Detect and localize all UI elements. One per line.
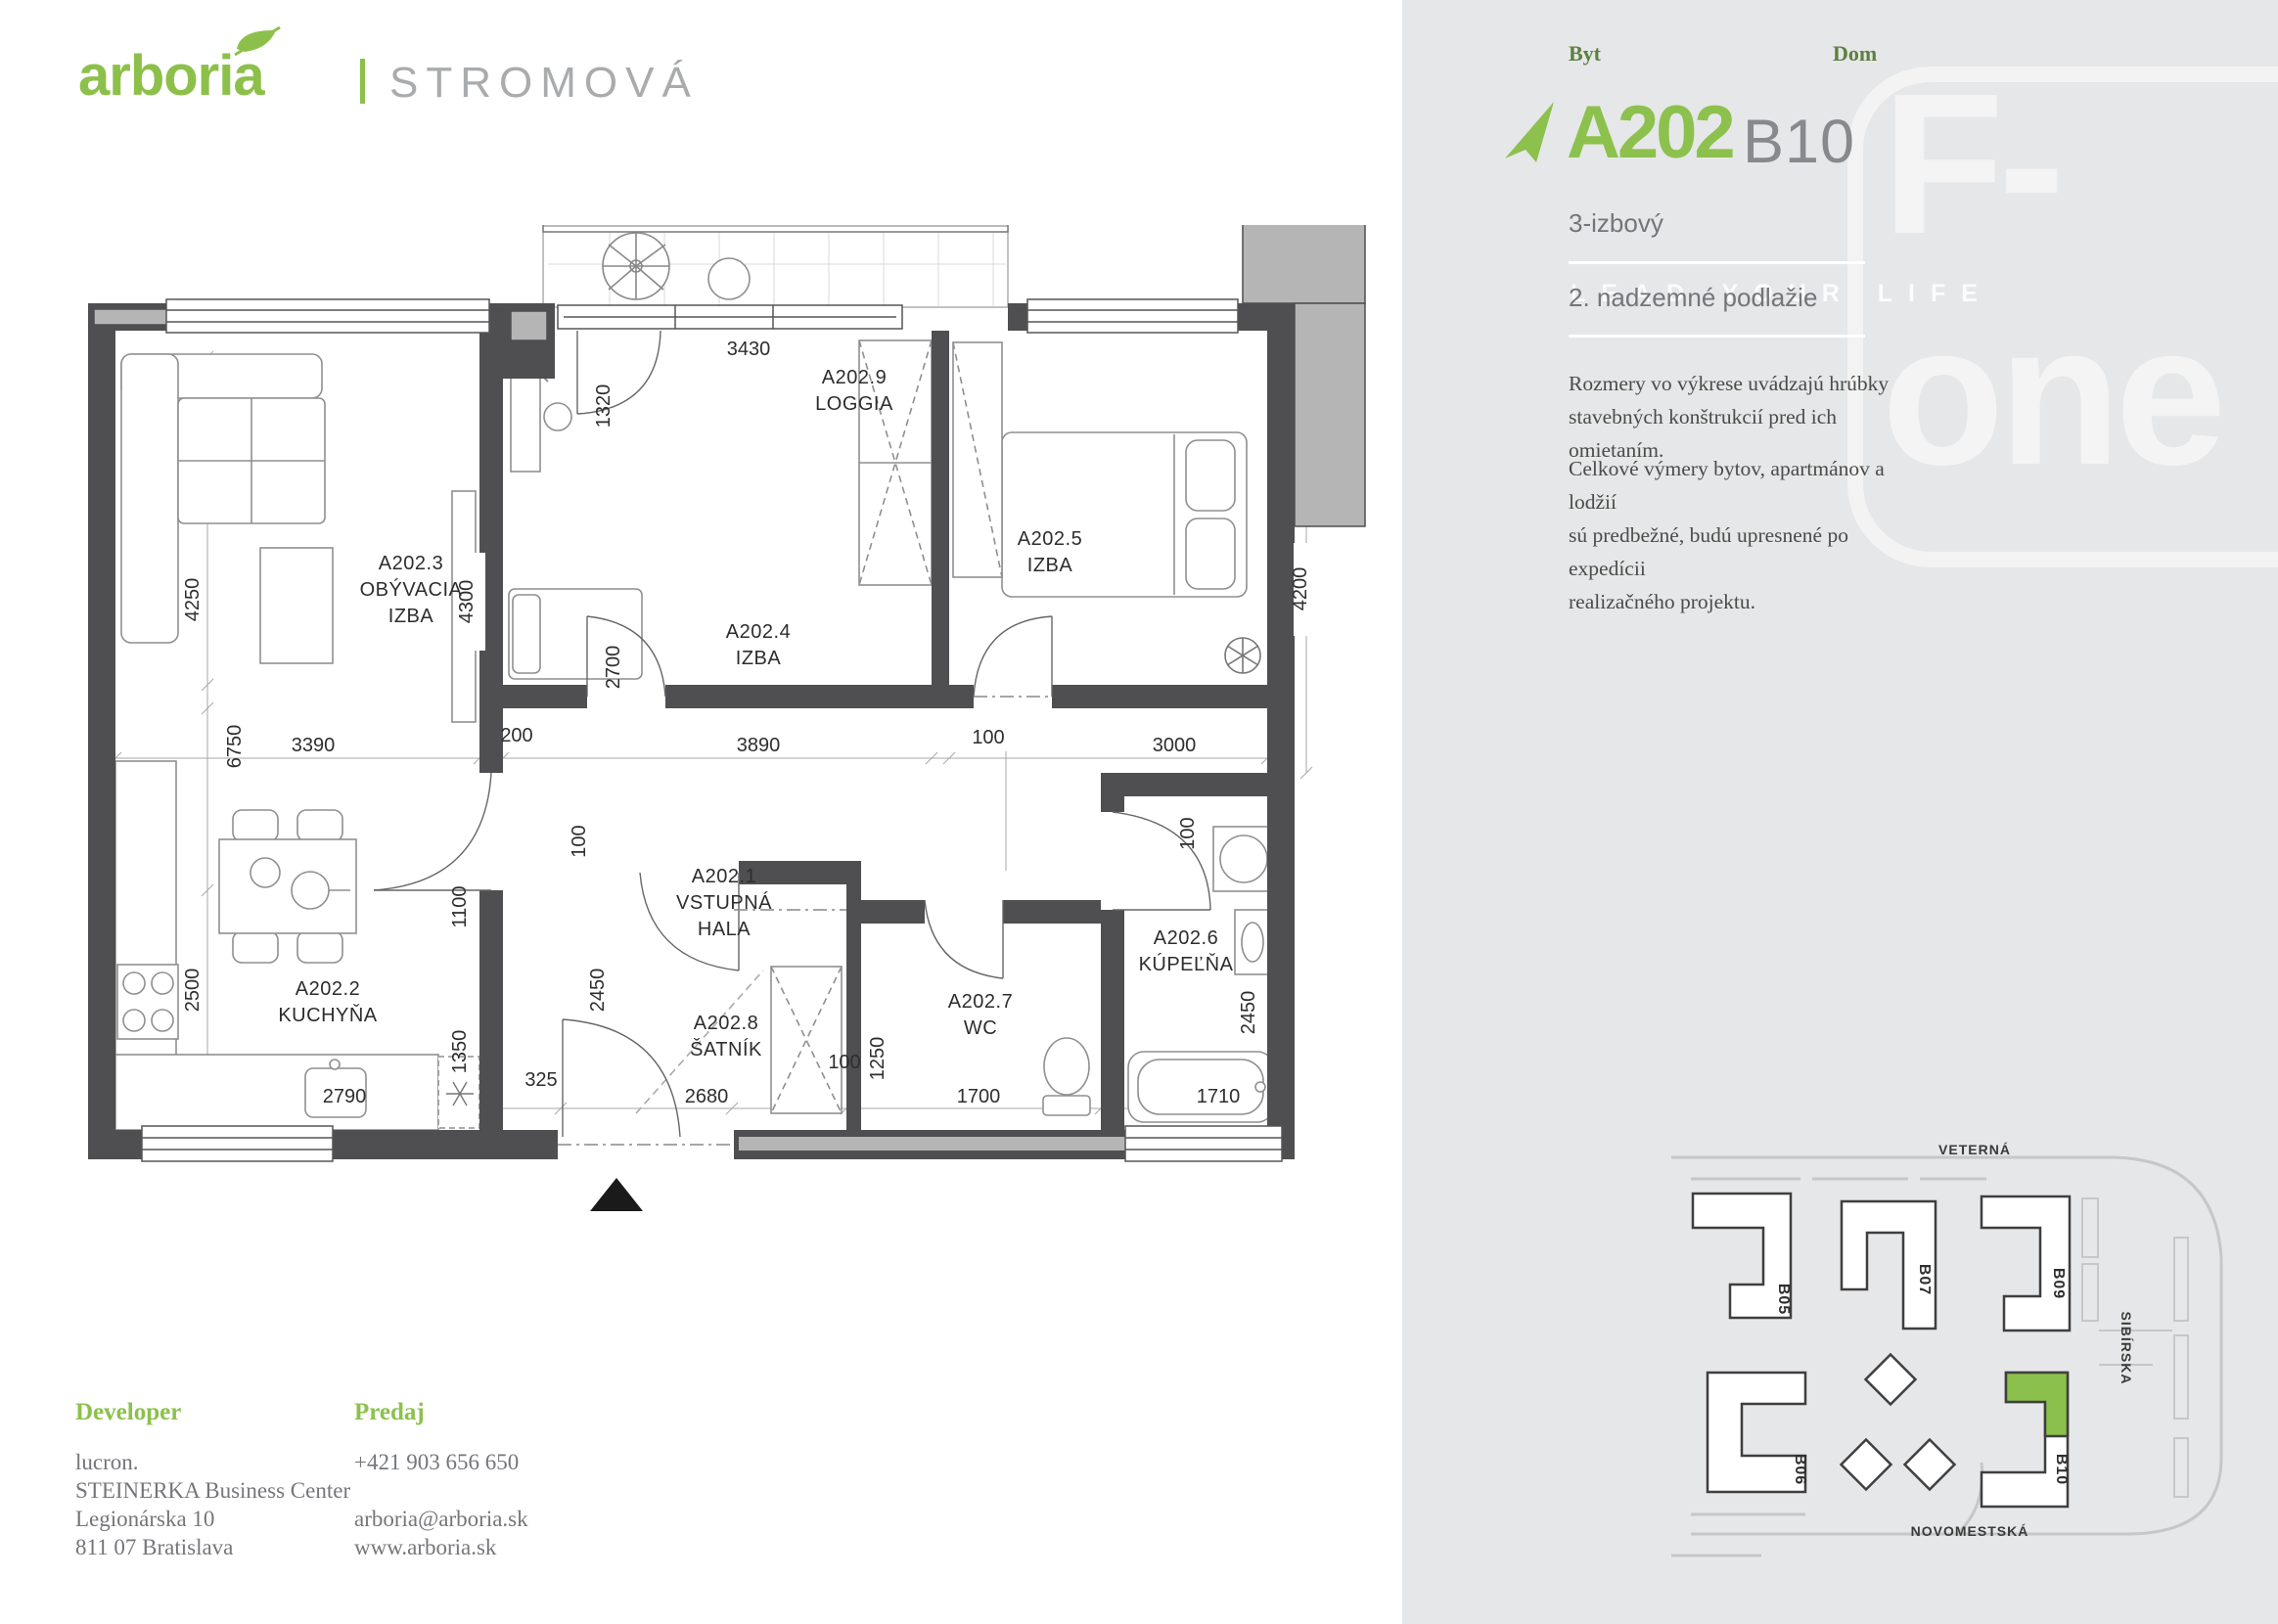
dimension-label: 3890 <box>737 735 781 756</box>
floor-plan-drawing: 3430132042504300270067503390200389010030… <box>88 225 1370 1262</box>
dimension-label: 3000 <box>1153 735 1197 756</box>
unit-type: 3-izbový <box>1569 208 1663 239</box>
room-code-label: A202.1 <box>692 866 756 887</box>
room-name-label: IZBA <box>1027 555 1073 576</box>
divider-line <box>1569 261 1865 264</box>
brand-header: arboria STROMOVÁ <box>78 47 264 115</box>
building-label: B07 <box>1916 1264 1933 1295</box>
dimension-label: 2450 <box>587 969 609 1013</box>
stove-icon <box>117 965 178 1039</box>
room-code-label: A202.8 <box>694 1013 758 1034</box>
dimension-label: 6750 <box>224 725 246 769</box>
dimension-label: 3430 <box>727 338 771 360</box>
developer-lines: lucron.STEINERKA Business CenterLegionár… <box>75 1448 350 1561</box>
building-label: B10 <box>2053 1454 2070 1485</box>
developer-heading: Developer <box>75 1399 350 1426</box>
street-label: NOVOMESTSKÁ <box>1911 1523 2029 1539</box>
text-line: lucron. <box>75 1448 350 1476</box>
text-line: realizačného projektu. <box>1569 585 1921 618</box>
sales-lines: +421 903 656 650 arboria@arboria.skwww.a… <box>354 1448 528 1561</box>
dimension-label: 2680 <box>685 1086 729 1107</box>
entrance-arrow <box>590 1178 643 1211</box>
dimension-label: 1350 <box>449 1030 471 1074</box>
room-code-label: A202.9 <box>822 367 887 388</box>
room-name-label: VSTUPNÁ <box>676 891 772 914</box>
room-name-label: OBÝVACIA <box>360 578 463 601</box>
loggia-table-icon <box>708 258 750 299</box>
sales-block: Predaj +421 903 656 650 arboria@arboria.… <box>354 1399 528 1561</box>
building-b09 <box>1982 1196 2070 1331</box>
washing-machine-icon <box>1213 827 1274 891</box>
room-name-label: HALA <box>698 919 751 940</box>
room-code-label: A202.5 <box>1018 528 1082 550</box>
dimension-label: 1250 <box>867 1037 888 1081</box>
dimension-label: 2500 <box>182 969 204 1013</box>
text-line: Rozmery vo výkrese uvádzajú hrúbky <box>1569 367 1921 400</box>
room-name-label: LOGGIA <box>815 393 893 415</box>
text-line: Celkové výmery bytov, apartmánov a lodži… <box>1569 452 1921 519</box>
plant-icon <box>1225 638 1260 673</box>
room-code-label: A202.4 <box>726 621 791 643</box>
bedroom-wardrobe-icon <box>953 342 1002 577</box>
loggia-door-band <box>558 305 902 329</box>
map-diamonds <box>1842 1355 1955 1490</box>
room-code-label: A202.6 <box>1154 927 1218 949</box>
dimension-label: 1700 <box>957 1086 1001 1107</box>
location-arrow-icon <box>1505 102 1558 169</box>
info-panel: F-one LEAD YOUR LIFE Byt Dom A202 B10 3-… <box>1402 0 2278 1624</box>
building-b06 <box>1708 1373 1805 1492</box>
leaf-icon <box>231 25 282 64</box>
brand-divider <box>360 59 365 104</box>
bath-sink-icon <box>1235 910 1270 974</box>
room-name-label: ŠATNÍK <box>690 1038 762 1060</box>
dimension-label: 1710 <box>1197 1086 1241 1107</box>
site-map: VETERNÁSIBÍRSKANOVOMESTSKÁB05B07B09B06B1… <box>1663 1125 2278 1624</box>
dimension-label: 2700 <box>603 646 624 690</box>
room-name-label: KÚPEĽŇA <box>1139 953 1234 975</box>
developer-block: Developer lucron.STEINERKA Business Cent… <box>75 1399 350 1561</box>
text-line: Legionárska 10 <box>75 1505 350 1533</box>
text-line: arboria@arboria.sk <box>354 1505 528 1533</box>
window-living <box>166 299 489 333</box>
byt-label: Byt <box>1569 41 1601 67</box>
room-name-label: KUCHYŇA <box>278 1004 377 1026</box>
dimension-label: 100 <box>828 1052 860 1073</box>
room-code-label: A202.3 <box>379 553 443 574</box>
floor-plan: 3430132042504300270067503390200389010030… <box>88 225 1370 1262</box>
room-code-label: A202.2 <box>296 978 360 1000</box>
sales-heading: Predaj <box>354 1399 528 1426</box>
room-code-label: A202.7 <box>948 991 1013 1013</box>
text-line: sú predbežné, budú upresnené po expedíci… <box>1569 519 1921 585</box>
building-b10-highlight <box>2006 1373 2068 1436</box>
dimension-label: 100 <box>569 825 590 857</box>
dimension-label: 4250 <box>182 578 204 622</box>
building-label: B06 <box>1792 1454 1808 1485</box>
unit-code: A202 <box>1567 94 1733 172</box>
map-parking <box>2082 1198 2188 1497</box>
dimension-label: 325 <box>524 1069 557 1091</box>
room-name-label: IZBA <box>736 648 782 669</box>
building-code: B10 <box>1743 110 1855 174</box>
dimension-label: 1320 <box>593 384 615 429</box>
window-kitchen <box>142 1126 333 1161</box>
building-label: B05 <box>1775 1284 1792 1315</box>
dimension-label: 100 <box>972 727 1004 748</box>
street-label: VETERNÁ <box>1938 1142 2011 1157</box>
dining-table-icon <box>219 810 356 963</box>
text-line: STEINERKA Business Center <box>75 1476 350 1505</box>
dimension-label: 2450 <box>1238 991 1259 1035</box>
text-line: 811 07 Bratislava <box>75 1533 350 1561</box>
coffee-table-icon <box>260 548 333 663</box>
dimension-label: 200 <box>500 725 532 746</box>
toilet-icon <box>1043 1038 1090 1115</box>
window-bathroom <box>1125 1126 1282 1161</box>
window-bedroom <box>1027 299 1238 333</box>
dimension-label: 2790 <box>323 1086 367 1107</box>
room-name-label: IZBA <box>388 606 434 627</box>
note-areas: Celkové výmery bytov, apartmánov a lodži… <box>1569 452 1921 618</box>
project-name: STROMOVÁ <box>389 59 699 108</box>
floor-info: 2. nadzemné podlažie <box>1569 283 1817 313</box>
dom-label: Dom <box>1833 41 1877 67</box>
site-map-drawing: VETERNÁSIBÍRSKANOVOMESTSKÁB05B07B09B06B1… <box>1663 1125 2278 1624</box>
building-label: B09 <box>2050 1268 2067 1299</box>
text-line: +421 903 656 650 <box>354 1448 528 1476</box>
page: arboria STROMOVÁ <box>0 0 2278 1624</box>
text-line <box>354 1476 528 1505</box>
divider-line <box>1569 335 1865 338</box>
loggia-plant-icon <box>603 233 669 299</box>
text-line: www.arboria.sk <box>354 1533 528 1561</box>
room-name-label: WC <box>964 1017 997 1039</box>
dimension-label: 3390 <box>292 735 336 756</box>
dimension-label: 1100 <box>449 885 471 927</box>
dimension-label: 100 <box>1177 817 1199 849</box>
street-label: SIBÍRSKA <box>2119 1312 2134 1385</box>
dimension-label: 4200 <box>1290 567 1311 611</box>
